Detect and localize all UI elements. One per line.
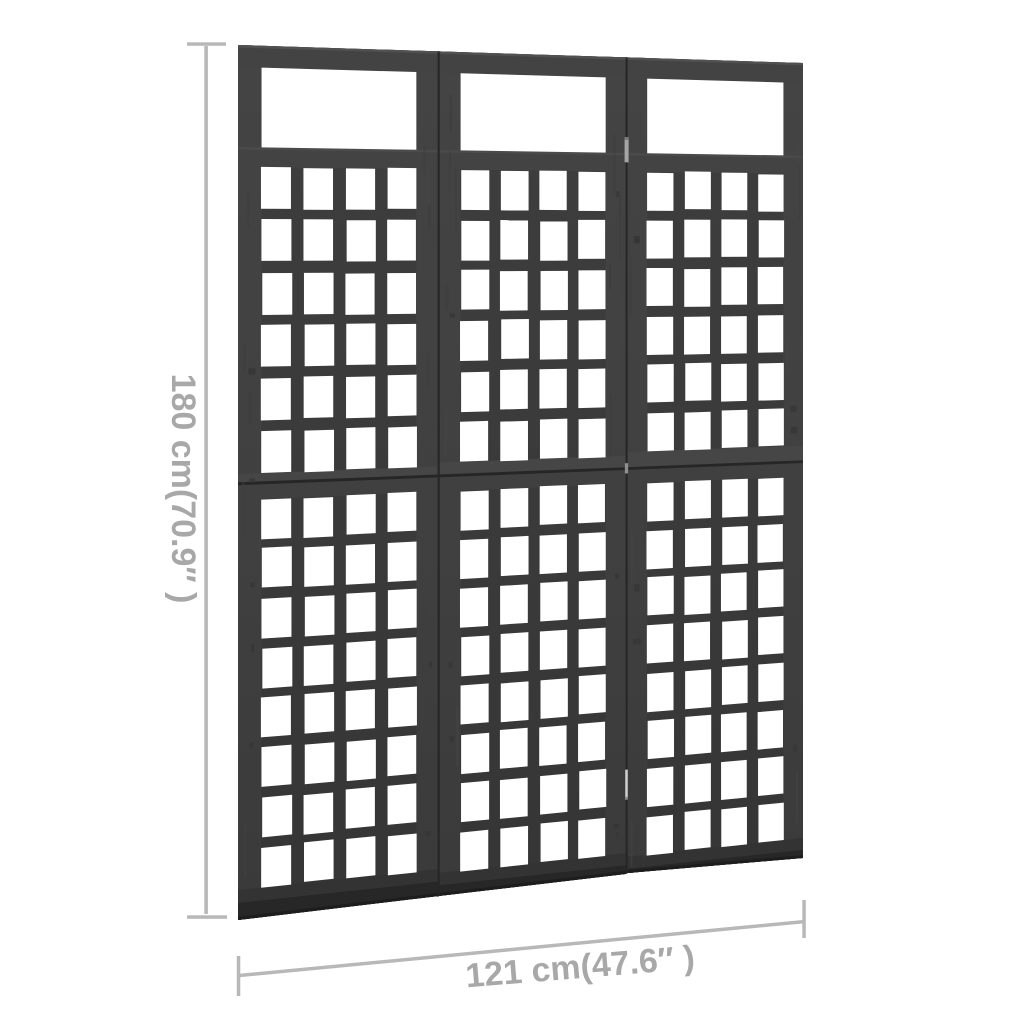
svg-text:180 cm(70.9″ ): 180 cm(70.9″ ) <box>164 374 202 604</box>
